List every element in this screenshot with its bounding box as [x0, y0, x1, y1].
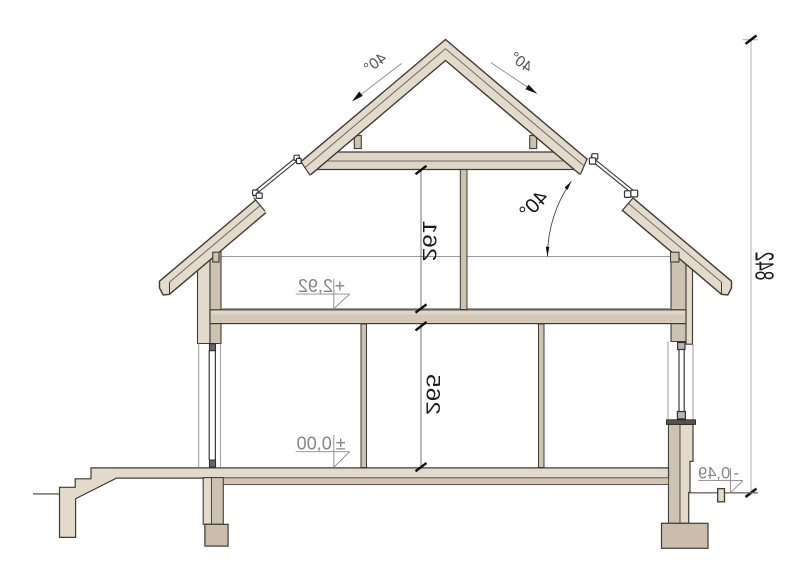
- svg-text:842: 842: [750, 252, 780, 281]
- svg-text:-: -: [734, 464, 740, 482]
- svg-text:2,92: 2,92: [298, 276, 333, 296]
- svg-text:±: ±: [336, 433, 346, 453]
- svg-text:0,00: 0,00: [297, 433, 332, 453]
- svg-text:+: +: [335, 276, 346, 296]
- svg-text:0,49: 0,49: [698, 464, 730, 482]
- svg-text:261: 261: [418, 221, 439, 262]
- svg-text:265: 265: [422, 374, 443, 415]
